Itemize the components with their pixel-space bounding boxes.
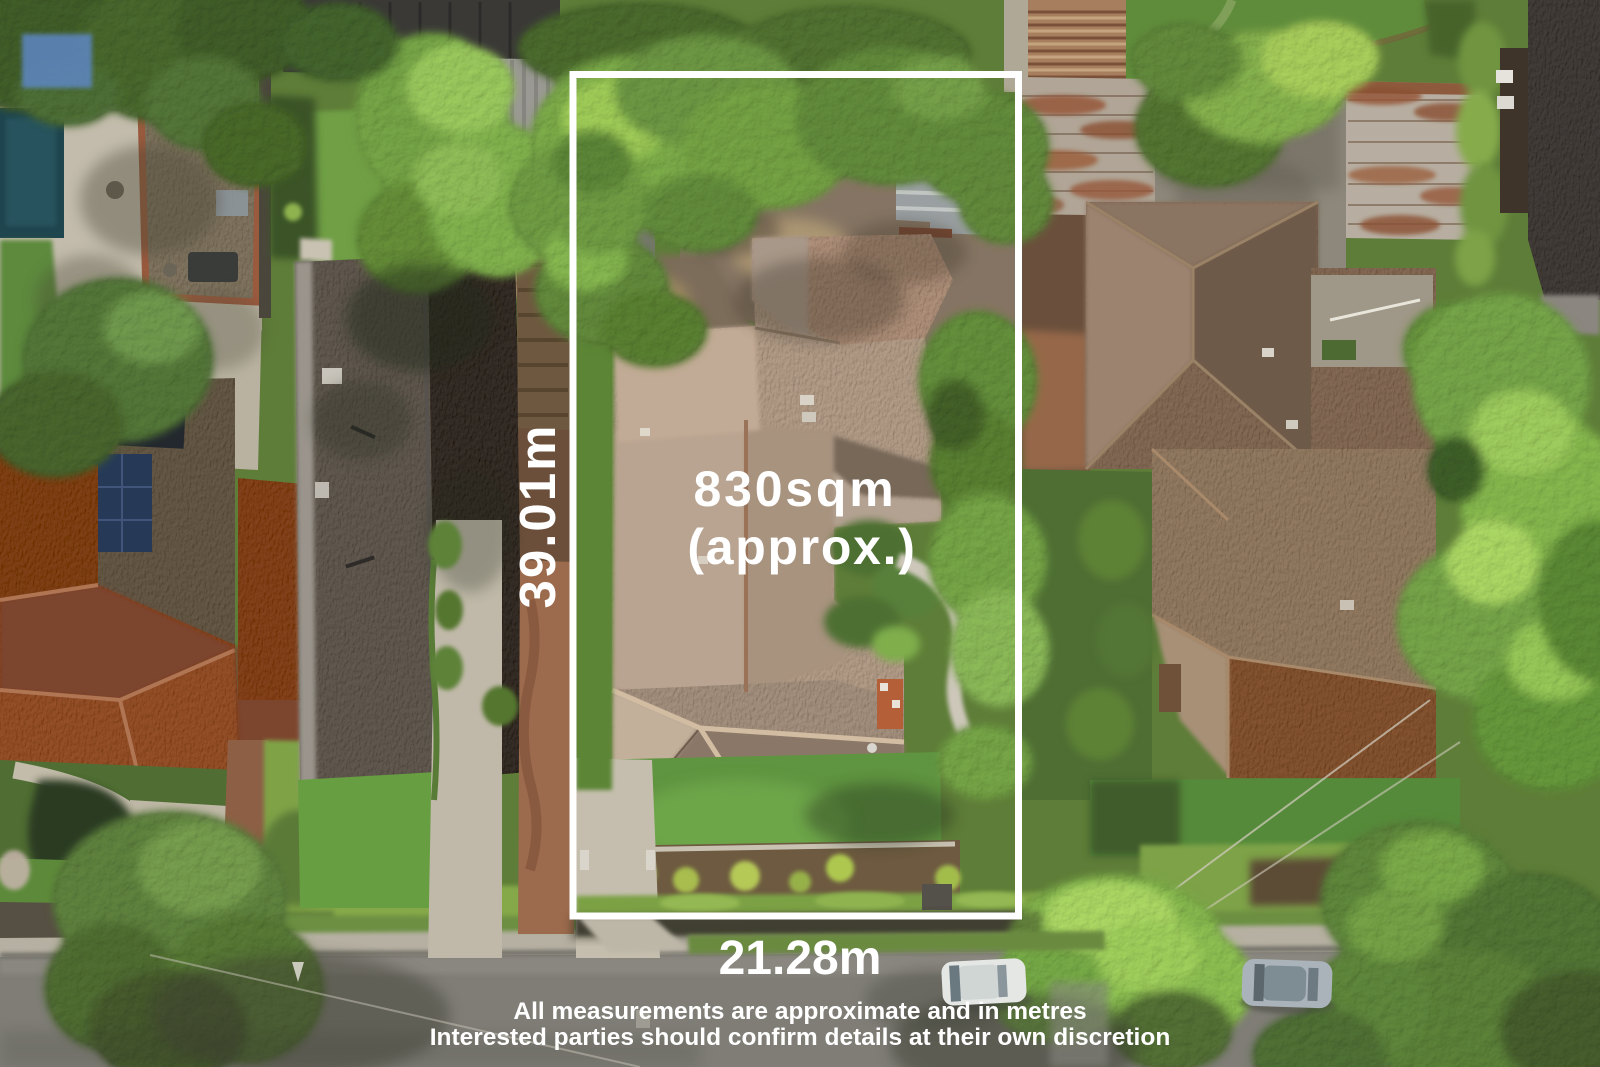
svg-text:21.28m: 21.28m xyxy=(719,932,882,985)
svg-text:All measurements are approxima: All measurements are approximate and in … xyxy=(513,998,1086,1025)
svg-text:39.01m: 39.01m xyxy=(509,424,566,609)
svg-text:Interested parties should conf: Interested parties should confirm detail… xyxy=(430,1024,1171,1051)
svg-text:(approx.): (approx.) xyxy=(687,519,916,575)
svg-text:830sqm: 830sqm xyxy=(693,461,896,517)
